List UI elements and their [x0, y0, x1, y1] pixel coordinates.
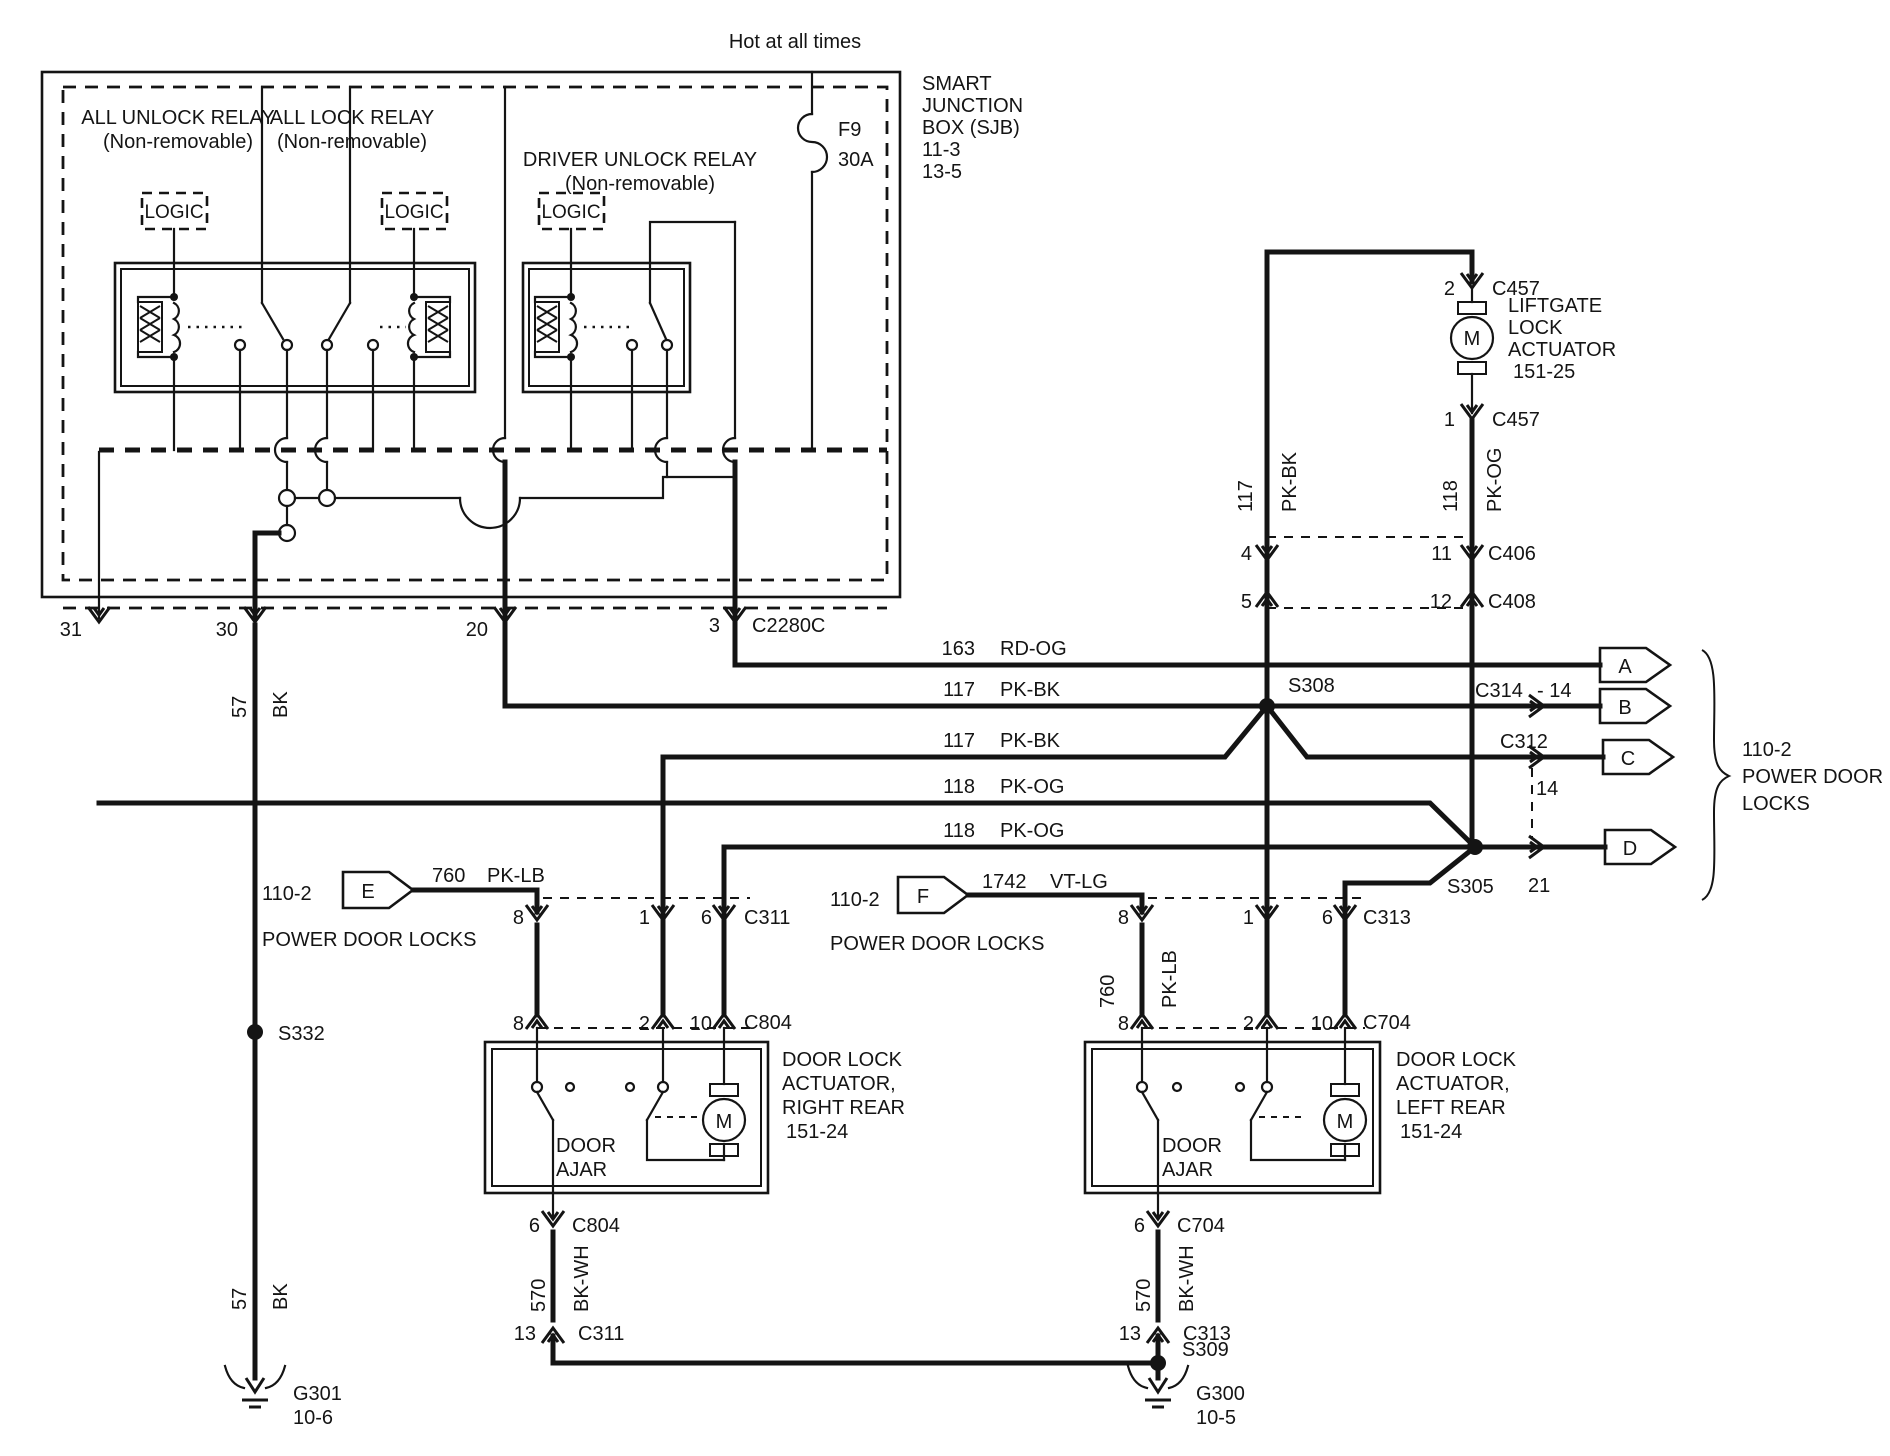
svg-text:6: 6 [1134, 1215, 1145, 1237]
svg-text:1: 1 [639, 907, 650, 929]
door-ajar-switch-arm [537, 1092, 553, 1120]
svg-text:JUNCTION: JUNCTION [922, 95, 1023, 117]
svg-text:6: 6 [1322, 907, 1333, 929]
svg-text:118: 118 [1440, 480, 1462, 512]
svg-text:ACTUATOR: ACTUATOR [1508, 339, 1616, 361]
svg-text:117: 117 [943, 679, 975, 701]
svg-text:LOGIC: LOGIC [541, 202, 600, 223]
wire-rows [99, 665, 1605, 1015]
svg-text:C804: C804 [744, 1012, 792, 1034]
svg-text:10: 10 [690, 1013, 712, 1035]
svg-text:DOOR: DOOR [1162, 1135, 1222, 1157]
svg-text:1: 1 [1243, 907, 1254, 929]
svg-text:PK-BK: PK-BK [1000, 730, 1061, 752]
svg-text:C312: C312 [1500, 731, 1548, 753]
svg-text:760: 760 [432, 865, 465, 887]
svg-text:C311: C311 [744, 907, 790, 929]
svg-text:LOCKS: LOCKS [1742, 793, 1810, 815]
svg-text:POWER DOOR LOCKS: POWER DOOR LOCKS [830, 933, 1044, 955]
svg-text:BK-WH: BK-WH [571, 1245, 593, 1312]
svg-text:10-6: 10-6 [293, 1407, 333, 1429]
sjb-pin-labels: 31 30 20 3 C2280C [60, 615, 826, 641]
connector-e [343, 872, 413, 908]
f-connector-branch [898, 877, 1365, 1084]
svg-text:2: 2 [639, 1013, 650, 1035]
splice-s305 [1467, 839, 1483, 855]
svg-text:151-24: 151-24 [786, 1121, 848, 1143]
relay-titles: ALL UNLOCK RELAY (Non-removable) ALL LOC… [81, 107, 757, 223]
svg-text:13: 13 [514, 1323, 536, 1345]
switch-arm [650, 303, 666, 339]
svg-text:SMART: SMART [922, 73, 992, 95]
svg-text:12: 12 [1430, 591, 1452, 613]
svg-text:118: 118 [943, 820, 975, 842]
svg-text:151-25: 151-25 [1513, 361, 1575, 383]
connector-b [1600, 689, 1670, 723]
svg-text:C311: C311 [578, 1323, 624, 1345]
svg-text:VT-LG: VT-LG [1050, 871, 1108, 893]
svg-text:8: 8 [1118, 1013, 1129, 1035]
svg-text:2: 2 [1243, 1013, 1254, 1035]
svg-text:PK-BK: PK-BK [1279, 451, 1301, 512]
svg-text:DOOR LOCK: DOOR LOCK [1396, 1049, 1517, 1071]
door-ajar-switch-arm [1142, 1092, 1158, 1120]
svg-text:C313: C313 [1363, 907, 1411, 929]
svg-text:BOX (SJB): BOX (SJB) [922, 117, 1020, 139]
svg-text:13: 13 [1119, 1323, 1141, 1345]
svg-text:10: 10 [1311, 1013, 1333, 1035]
liftgate-circuit [1256, 252, 1493, 1015]
wire-s305-to-c313 [1345, 847, 1475, 1015]
svg-text:RD-OG: RD-OG [1000, 638, 1067, 660]
svg-text:110-2: 110-2 [830, 889, 880, 911]
right-rear-ground-path [542, 1193, 1158, 1363]
svg-text:3: 3 [709, 615, 720, 637]
svg-text:C704: C704 [1363, 1012, 1411, 1034]
svg-text:11-3: 11-3 [922, 139, 961, 161]
svg-text:1: 1 [1444, 409, 1455, 431]
svg-text:PK-OG: PK-OG [1000, 776, 1064, 798]
svg-text:118: 118 [943, 776, 975, 798]
relay-switch-driver-unlock [584, 222, 735, 450]
lock-switch-arm [1251, 1092, 1267, 1120]
svg-text:C704: C704 [1177, 1215, 1225, 1237]
svg-text:F: F [917, 886, 929, 908]
svg-text:760: 760 [1097, 975, 1119, 1008]
fuse-f9: F9 30A [798, 72, 874, 450]
svg-text:LOGIC: LOGIC [384, 202, 443, 223]
svg-text:8: 8 [1118, 907, 1129, 929]
svg-text:S305: S305 [1447, 876, 1494, 898]
ground-labels: G301 10-6 G300 10-5 [293, 1383, 1245, 1429]
relay-box-driver-unlock [523, 263, 690, 392]
svg-text:1742: 1742 [982, 871, 1027, 893]
svg-text:ACTUATOR,: ACTUATOR, [1396, 1073, 1510, 1095]
svg-text:117: 117 [1235, 480, 1257, 512]
connector-f [898, 877, 968, 913]
lock-switch-arm [647, 1092, 663, 1120]
svg-text:8: 8 [513, 907, 524, 929]
svg-text:LEFT REAR: LEFT REAR [1396, 1097, 1506, 1119]
svg-text:151-24: 151-24 [1400, 1121, 1462, 1143]
svg-text:S308: S308 [1288, 675, 1335, 697]
relay-box-all-unlock-all-lock [115, 263, 475, 392]
svg-text:LIFTGATE: LIFTGATE [1508, 295, 1602, 317]
coil-icon [174, 303, 180, 352]
svg-text:RIGHT REAR: RIGHT REAR [782, 1097, 905, 1119]
svg-text:163: 163 [942, 638, 975, 660]
wire-row-labels: 163 RD-OG 117 PK-BK 117 PK-BK 118 PK-OG … [942, 638, 1067, 842]
svg-text:PK-BK: PK-BK [1000, 679, 1061, 701]
wire-1742-vt-lg [968, 895, 1142, 912]
svg-text:ALL UNLOCK RELAY: ALL UNLOCK RELAY [81, 107, 274, 129]
svg-text:LOCK: LOCK [1508, 317, 1563, 339]
svg-text:20: 20 [466, 619, 488, 641]
svg-text:BK: BK [270, 1283, 292, 1310]
svg-text:ALL LOCK RELAY: ALL LOCK RELAY [270, 107, 435, 129]
svg-text:21: 21 [1528, 875, 1550, 897]
connector-a [1600, 648, 1670, 682]
power-door-locks-wiring-diagram: F9 30A [0, 0, 1890, 1456]
svg-text:6: 6 [701, 907, 712, 929]
f-branch-labels: 110-2 POWER DOOR LOCKS F 1742 VT-LG 8 1 … [830, 871, 1517, 1345]
sjb-label: SMART JUNCTION BOX (SJB) 11-3 13-5 [922, 73, 1023, 183]
svg-text:- 14: - 14 [1537, 680, 1571, 702]
svg-text:ACTUATOR,: ACTUATOR, [782, 1073, 896, 1095]
svg-text:C406: C406 [1488, 543, 1536, 565]
svg-text:570: 570 [1133, 1279, 1155, 1312]
svg-text:G301: G301 [293, 1383, 342, 1405]
e-connector-branch [343, 872, 750, 1084]
svg-text:10-5: 10-5 [1196, 1407, 1236, 1429]
svg-text:6: 6 [529, 1215, 540, 1237]
connector-pentagons [1600, 648, 1729, 900]
svg-text:C457: C457 [1492, 409, 1540, 431]
bk-wire-labels: 57 BK 57 BK [229, 691, 292, 1310]
svg-text:117: 117 [943, 730, 975, 752]
svg-text:DOOR: DOOR [556, 1135, 616, 1157]
switch-arm [262, 303, 283, 339]
svg-text:PK-OG: PK-OG [1484, 448, 1506, 512]
svg-text:G300: G300 [1196, 1383, 1245, 1405]
svg-text:B: B [1618, 697, 1631, 719]
svg-text:BK-WH: BK-WH [1176, 1245, 1198, 1312]
svg-text:PK-LB: PK-LB [1159, 950, 1181, 1008]
svg-text:PK-LB: PK-LB [487, 865, 545, 887]
svg-text:13-5: 13-5 [922, 161, 962, 183]
svg-text:M: M [716, 1111, 733, 1133]
svg-text:C408: C408 [1488, 591, 1536, 613]
svg-text:BK: BK [270, 691, 292, 718]
svg-text:C804: C804 [572, 1215, 620, 1237]
svg-text:E: E [361, 881, 374, 903]
svg-text:C2280C: C2280C [752, 615, 825, 637]
svg-text:14: 14 [1536, 778, 1558, 800]
wire-hop-under [460, 498, 520, 528]
svg-text:(Non-removable): (Non-removable) [565, 173, 715, 195]
svg-text:11: 11 [1431, 543, 1452, 565]
svg-text:(Non-removable): (Non-removable) [277, 131, 427, 153]
connector-c [1603, 740, 1673, 774]
coil-icon [408, 303, 414, 352]
coil-icon [571, 303, 577, 352]
svg-text:C314: C314 [1475, 680, 1523, 702]
fuse-amp: 30A [838, 149, 874, 171]
svg-text:POWER DOOR: POWER DOOR [1742, 766, 1883, 788]
svg-text:S332: S332 [278, 1023, 325, 1045]
svg-text:LOGIC: LOGIC [144, 202, 203, 223]
fuse-icon [798, 114, 827, 172]
svg-text:4: 4 [1241, 543, 1252, 565]
svg-text:110-2: 110-2 [1742, 739, 1792, 761]
svg-text:D: D [1623, 838, 1637, 860]
connector-d [1605, 830, 1675, 864]
svg-text:C: C [1621, 748, 1635, 770]
svg-text:AJAR: AJAR [556, 1159, 607, 1181]
svg-text:57: 57 [229, 1288, 251, 1310]
brace-icon [1702, 650, 1729, 900]
relay-output-terminals [255, 462, 735, 618]
svg-text:POWER DOOR LOCKS: POWER DOOR LOCKS [262, 929, 476, 951]
svg-text:AJAR: AJAR [1162, 1159, 1213, 1181]
wire-117-pk-bk-c-right [1267, 706, 1603, 757]
switch-arm [329, 303, 350, 339]
svg-text:31: 31 [60, 619, 82, 641]
svg-text:110-2: 110-2 [262, 883, 312, 905]
inline-connector-arrows [1529, 695, 1544, 858]
svg-text:57: 57 [229, 696, 251, 718]
fuse-name: F9 [838, 119, 861, 141]
svg-text:DOOR LOCK: DOOR LOCK [782, 1049, 903, 1071]
power-door-locks-right-label: 110-2 POWER DOOR LOCKS [1742, 739, 1883, 815]
svg-text:570: 570 [528, 1279, 550, 1312]
splice-s308 [1259, 698, 1275, 714]
svg-text:A: A [1618, 656, 1632, 678]
svg-text:DRIVER UNLOCK RELAY: DRIVER UNLOCK RELAY [523, 149, 757, 171]
svg-text:8: 8 [513, 1013, 524, 1035]
svg-text:30: 30 [216, 619, 238, 641]
wiring-diagram-page: F9 30A [0, 0, 1890, 1456]
liftgate-labels: 2 C457 M LIFTGATE LOCK ACTUATOR 151-25 1… [1235, 278, 1616, 613]
hot-at-all-times-label: Hot at all times [729, 31, 861, 53]
svg-text:M: M [1337, 1111, 1354, 1133]
svg-text:C313: C313 [1183, 1323, 1231, 1345]
svg-text:PK-OG: PK-OG [1000, 820, 1064, 842]
svg-text:(Non-removable): (Non-removable) [103, 131, 253, 153]
inline-connector-labels: C314 - 14 C312 14 21 A B C D [1475, 656, 1637, 897]
svg-text:2: 2 [1444, 278, 1455, 300]
e-branch-labels: 110-2 POWER DOOR LOCKS E 760 PK-LB 8 1 6… [262, 865, 905, 1345]
svg-text:M: M [1464, 328, 1481, 350]
svg-text:5: 5 [1241, 591, 1252, 613]
